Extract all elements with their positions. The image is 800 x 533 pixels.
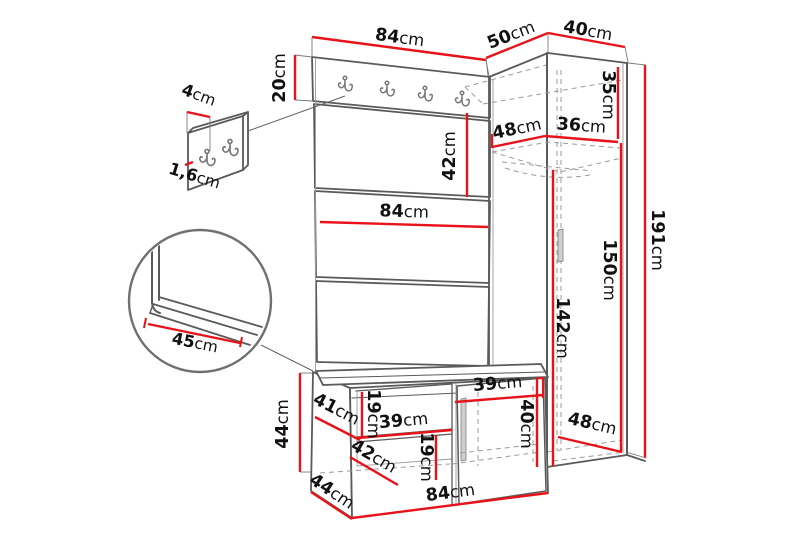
- label-44-left: 44cm: [273, 399, 293, 448]
- dim-line-36: [545, 136, 618, 142]
- label-35: 35cm: [598, 70, 618, 119]
- diagram-canvas: 84cm 50cm 40cm 20cm 4cm 1,6cm 42cm 84cm …: [0, 0, 800, 533]
- label-19b: 19cm: [416, 432, 436, 481]
- wardrobe-door-handle: [558, 229, 563, 262]
- dim-line-4: [187, 112, 210, 117]
- label-142: 142cm: [552, 297, 572, 359]
- label-150: 150cm: [599, 239, 619, 301]
- label-84-mid: 84cm: [379, 201, 429, 222]
- upholstered-panel-1: [314, 104, 490, 197]
- label-48-bottom: 48cm: [566, 409, 619, 440]
- wardrobe-bottom-edge: [547, 455, 645, 467]
- bench-door-handle: [461, 398, 466, 461]
- label-48-upper: 48cm: [491, 114, 543, 144]
- label-4: 4cm: [179, 80, 218, 110]
- label-42v: 42cm: [440, 131, 460, 180]
- dim-line-48-bottom: [558, 437, 622, 452]
- detail-leader-line: [261, 345, 313, 371]
- seat-depth-detail: [129, 230, 313, 372]
- upholstered-panel-3: [316, 281, 489, 366]
- label-20: 20cm: [270, 53, 290, 102]
- label-40-bench: 40cm: [516, 399, 536, 448]
- dimension-diagram: 84cm 50cm 40cm 20cm 4cm 1,6cm 42cm 84cm …: [0, 0, 800, 533]
- label-191: 191cm: [647, 209, 667, 271]
